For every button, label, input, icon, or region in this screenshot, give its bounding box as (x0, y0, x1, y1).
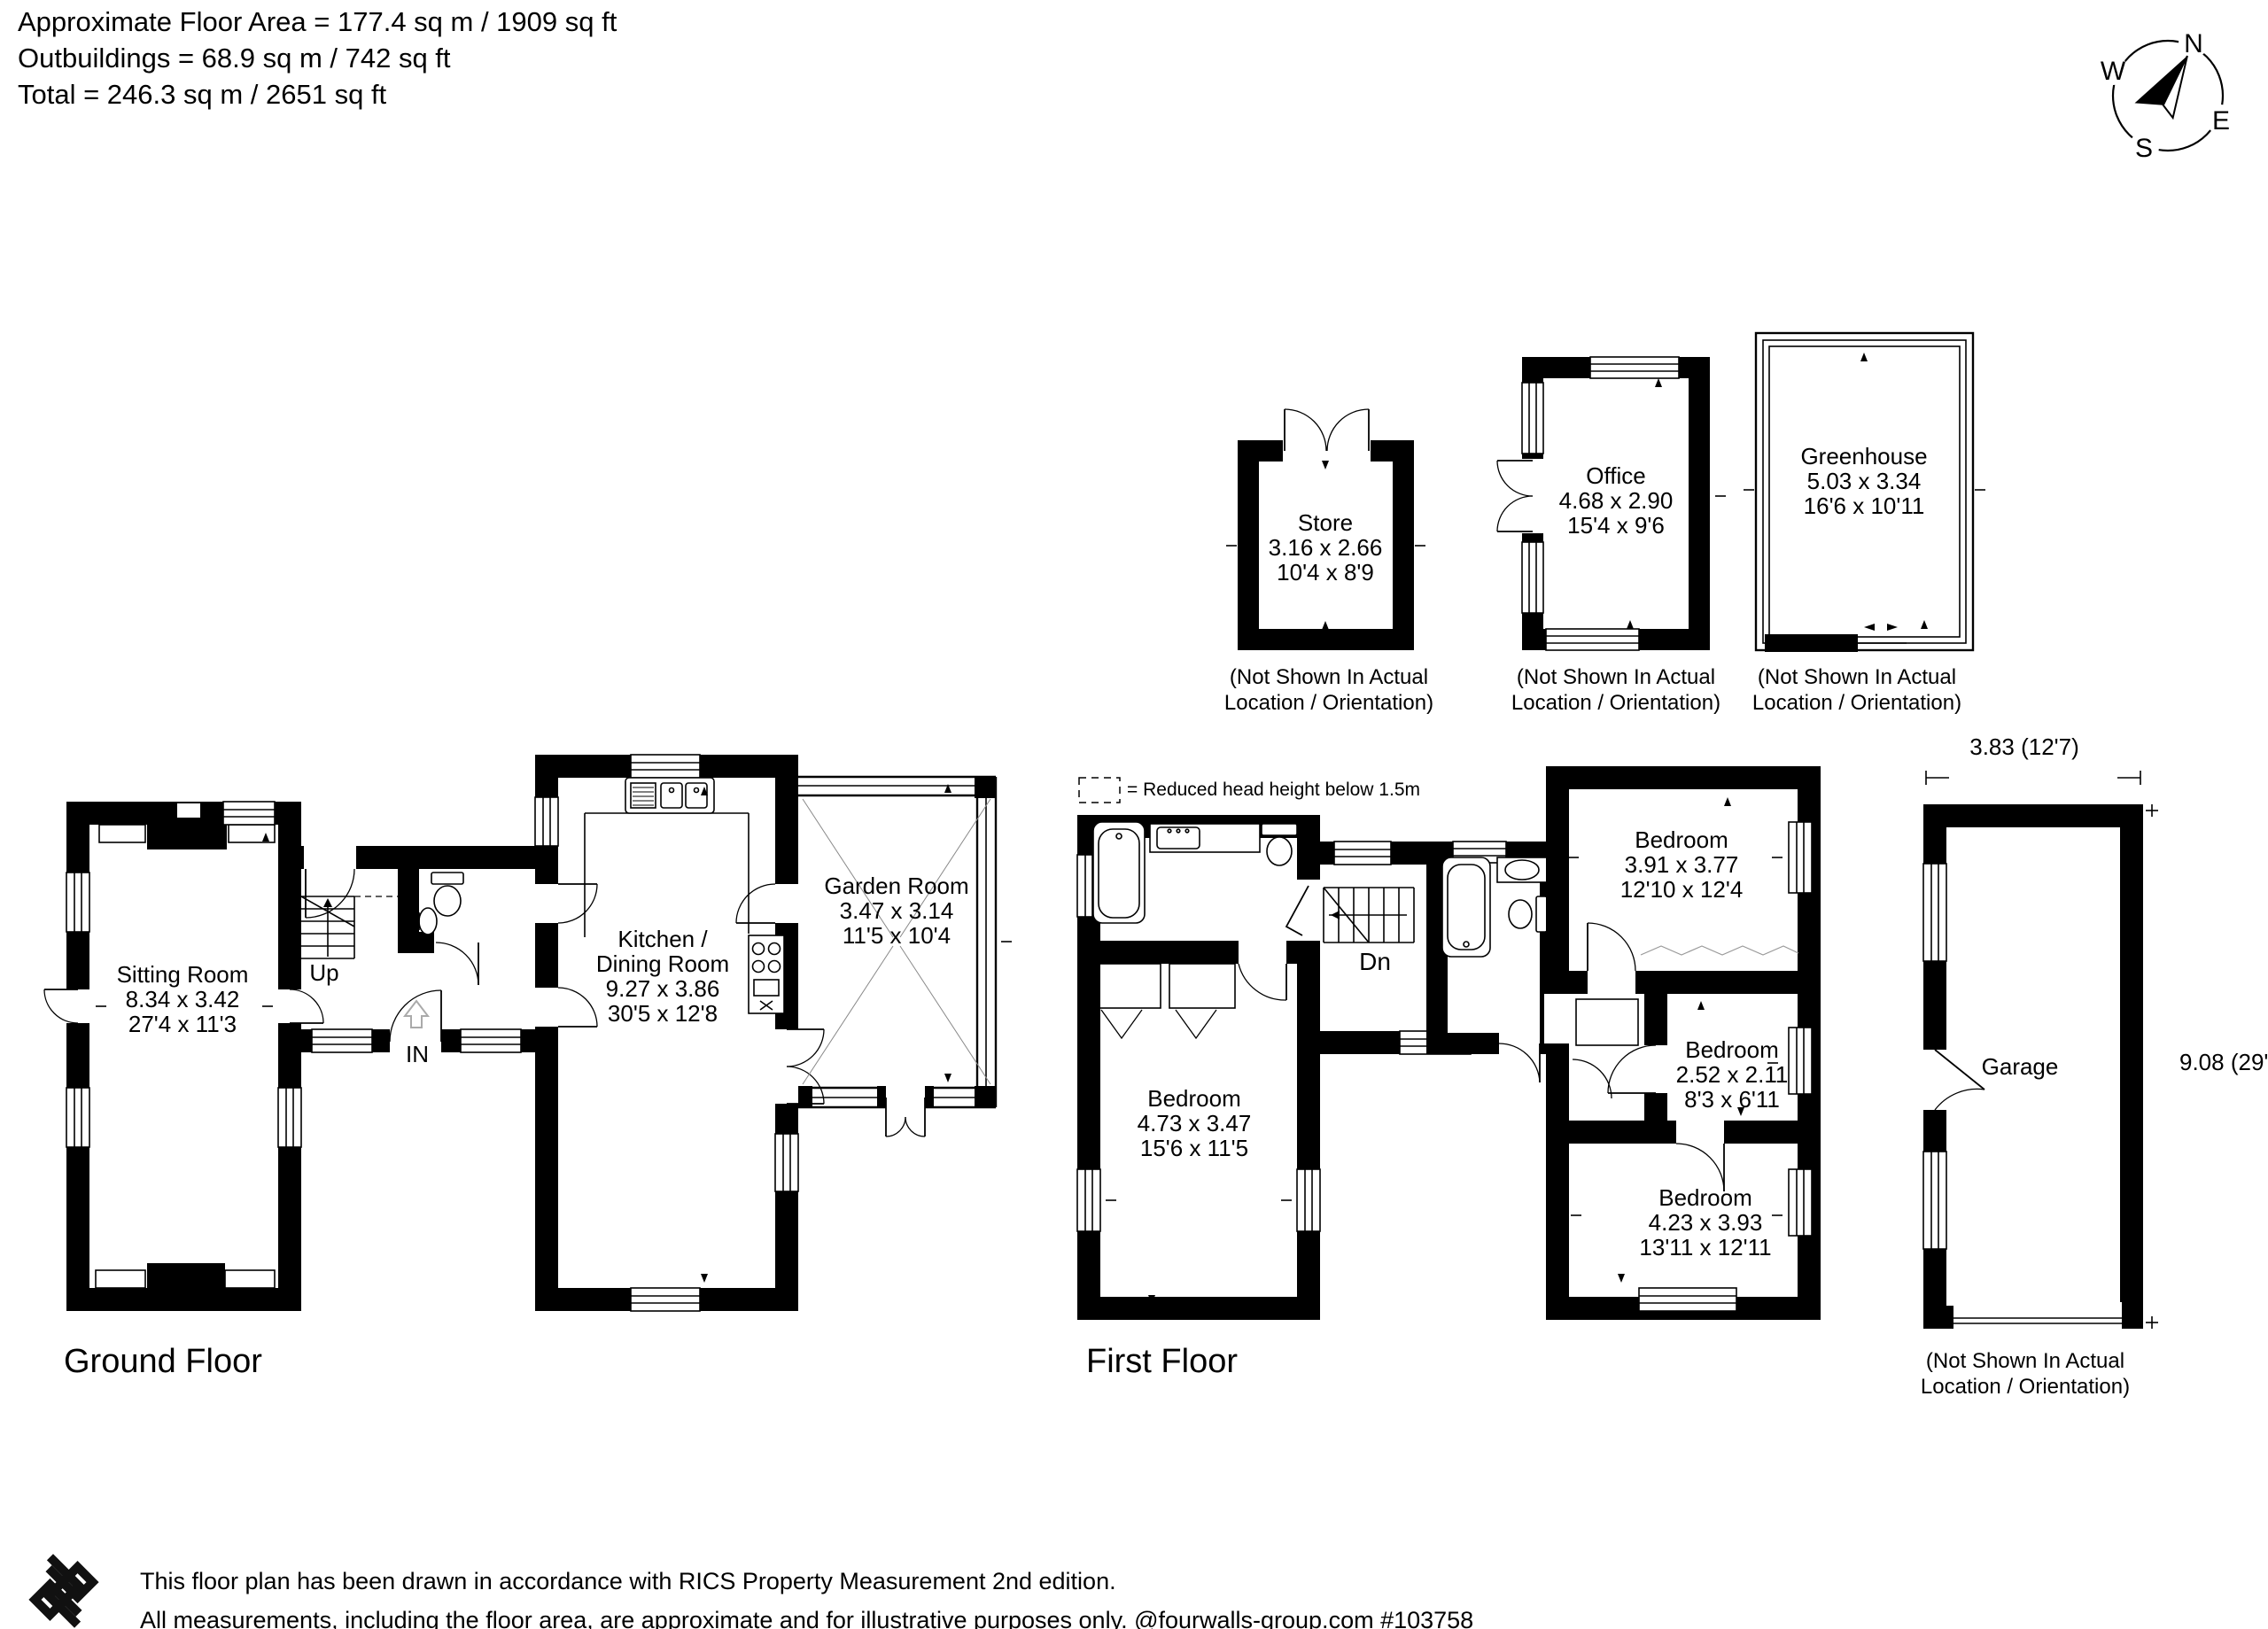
store-imperial: 10'4 x 8'9 (1269, 560, 1383, 585)
office-label: Office 4.68 x 2.90 15'4 x 9'6 (1559, 463, 1674, 538)
store-metric: 3.16 x 2.66 (1269, 535, 1383, 560)
sitting-room-name: Sitting Room (117, 962, 249, 987)
kitchen-metric: 9.27 x 3.86 (596, 976, 729, 1001)
office-note: (Not Shown In Actual Location / Orientat… (1511, 664, 1720, 716)
office-window-bottom (1546, 629, 1639, 650)
bedroom2-label: Bedroom 3.91 x 3.77 12'10 x 12'4 (1620, 827, 1744, 902)
bedroom1-imperial: 15'6 x 11'5 (1138, 1136, 1252, 1160)
compass-rose: N W E S (2098, 27, 2236, 163)
summary-total: Total = 246.3 sq m / 2651 sq ft (18, 76, 617, 112)
stairs-down-label: Dn (1359, 950, 1391, 974)
garden-room-walls (798, 777, 1012, 1136)
sitting-room-metric: 8.34 x 3.42 (117, 987, 249, 1012)
bedroom1-bathroom-walls (1077, 822, 1324, 1308)
summary-outbuildings: Outbuildings = 68.9 sq m / 742 sq ft (18, 40, 617, 76)
bedroom2-metric: 3.91 x 3.77 (1620, 852, 1744, 877)
bedroom4-name: Bedroom (1639, 1185, 1771, 1210)
wc-toilet (431, 873, 463, 916)
kitchen-window-top (631, 755, 700, 778)
greenhouse-metric: 5.03 x 3.34 (1800, 469, 1927, 493)
bedroom3-label: Bedroom 2.52 x 2.11 8'3 x 6'11 (1676, 1037, 1789, 1112)
fourwalls-logo (21, 1548, 106, 1629)
kitchen-dining-walls (533, 755, 824, 1311)
bedroom2-name: Bedroom (1620, 827, 1744, 852)
reduced-head-height-legend: = Reduced head height below 1.5m (1127, 780, 1420, 801)
garage-label: Garage (1982, 1054, 2059, 1079)
entrance-in-label: IN (406, 1042, 429, 1067)
compass-s: S (2135, 134, 2153, 163)
office-name: Office (1559, 463, 1674, 488)
bedroom4-metric: 4.23 x 3.93 (1639, 1210, 1771, 1235)
store-label: Store 3.16 x 2.66 10'4 x 8'9 (1269, 510, 1383, 585)
store-note: (Not Shown In Actual Location / Orientat… (1224, 664, 1433, 716)
compass-e: E (2212, 106, 2230, 136)
ground-floor-title: Ground Floor (64, 1343, 262, 1381)
bathroom2-walls (1437, 842, 1550, 1082)
bathroom1-bath (1093, 822, 1145, 923)
garage-window-lower (1923, 1152, 1946, 1249)
kitchen-imperial: 30'5 x 12'8 (596, 1001, 729, 1026)
bathroom2-sink (1497, 857, 1547, 882)
stairs-down (1324, 888, 1414, 942)
bedroom4-window-bottom (1639, 1288, 1736, 1311)
bedroom2-window (1789, 822, 1812, 893)
bedroom2-imperial: 12'10 x 12'4 (1620, 877, 1744, 902)
bedroom4-window-right (1789, 1169, 1812, 1236)
bedroom3-imperial: 8'3 x 6'11 (1676, 1087, 1789, 1112)
bedroom3-metric: 2.52 x 2.11 (1676, 1062, 1789, 1087)
bedroom1-label: Bedroom 4.73 x 3.47 15'6 x 11'5 (1138, 1086, 1252, 1160)
kitchen-name-2: Dining Room (596, 951, 729, 976)
bathroom2-bath (1442, 857, 1490, 957)
garage-window-upper (1923, 864, 1946, 961)
greenhouse-name: Greenhouse (1800, 444, 1927, 469)
summary-total-area: Approximate Floor Area = 177.4 sq m / 19… (18, 4, 617, 40)
landing-window-top (1334, 842, 1391, 865)
bedroom1-name: Bedroom (1138, 1086, 1252, 1111)
office-metric: 4.68 x 2.90 (1559, 488, 1674, 513)
garden-room-metric: 3.47 x 3.14 (824, 898, 968, 923)
store-name: Store (1269, 510, 1383, 535)
bedroom1-window-left (1077, 1169, 1100, 1231)
first-floor-title: First Floor (1086, 1343, 1238, 1381)
kitchen-name-1: Kitchen / (596, 927, 729, 951)
garage-width-dimension: 3.83 (12'7) (1969, 733, 2079, 761)
garden-room-name: Garden Room (824, 873, 968, 898)
garden-room-label: Garden Room 3.47 x 3.14 11'5 x 10'4 (824, 873, 968, 948)
greenhouse-imperial: 16'6 x 10'11 (1800, 493, 1927, 518)
office-window-left-lower (1522, 542, 1543, 613)
bathroom1-vanity (1150, 824, 1260, 852)
sitting-window-right (278, 1088, 301, 1147)
footer-rics-line: This floor plan has been drawn in accord… (140, 1568, 1116, 1595)
kitchen-window-right (775, 1134, 798, 1191)
wc-sink (419, 908, 437, 935)
entrance-arrow-icon (405, 1001, 428, 1028)
kitchen-window-bottom (631, 1288, 700, 1311)
stairs-up (301, 896, 398, 958)
stairs-up-label: Up (309, 960, 338, 985)
hall-window-right (461, 1029, 521, 1052)
bedroom4-imperial: 13'11 x 12'11 (1639, 1235, 1771, 1260)
garden-room-doors (886, 1098, 925, 1136)
kitchen-hob (749, 935, 784, 1013)
sitting-room-walls (44, 802, 323, 1299)
greenhouse-note: (Not Shown In Actual Location / Orientat… (1752, 664, 1961, 716)
greenhouse-label: Greenhouse 5.03 x 3.34 16'6 x 10'11 (1800, 444, 1927, 518)
floorplan-page: N W E S (0, 0, 2268, 1629)
hall-window-left (312, 1029, 372, 1052)
garden-room-imperial: 11'5 x 10'4 (824, 923, 968, 948)
kitchen-window-left (535, 797, 558, 846)
office-imperial: 15'4 x 9'6 (1559, 513, 1674, 538)
sitting-window-left-upper (66, 873, 89, 932)
legend-swatch (1079, 778, 1120, 803)
office-window-top (1590, 357, 1679, 378)
bedroom1-window-right (1297, 1169, 1320, 1231)
bedroom3-name: Bedroom (1676, 1037, 1789, 1062)
wc-room (398, 869, 478, 985)
bedroom3-window (1789, 1028, 1812, 1094)
compass-n: N (2184, 29, 2203, 58)
garage-walls (1922, 771, 2158, 1332)
entrance-hall (290, 844, 547, 1054)
footer-disclaimer-line: All measurements, including the floor ar… (140, 1607, 1473, 1629)
bedroom1-metric: 4.73 x 3.47 (1138, 1111, 1252, 1136)
bedroom4-label: Bedroom 4.23 x 3.93 13'11 x 12'11 (1639, 1185, 1771, 1260)
garage-depth-dimension: 9.08 (29'9) (2179, 1049, 2268, 1076)
sitting-room-imperial: 27'4 x 11'3 (117, 1012, 249, 1036)
compass-w: W (2101, 57, 2126, 86)
floor-area-summary: Approximate Floor Area = 177.4 sq m / 19… (18, 4, 617, 112)
sitting-room-label: Sitting Room 8.34 x 3.42 27'4 x 11'3 (117, 962, 249, 1036)
garage-note: (Not Shown In Actual Location / Orientat… (1921, 1348, 2130, 1400)
sitting-window-left-lower (66, 1088, 89, 1147)
sitting-window-top (223, 802, 275, 825)
office-window-left-upper (1522, 383, 1543, 454)
kitchen-dining-label: Kitchen / Dining Room 9.27 x 3.86 30'5 x… (596, 927, 729, 1026)
